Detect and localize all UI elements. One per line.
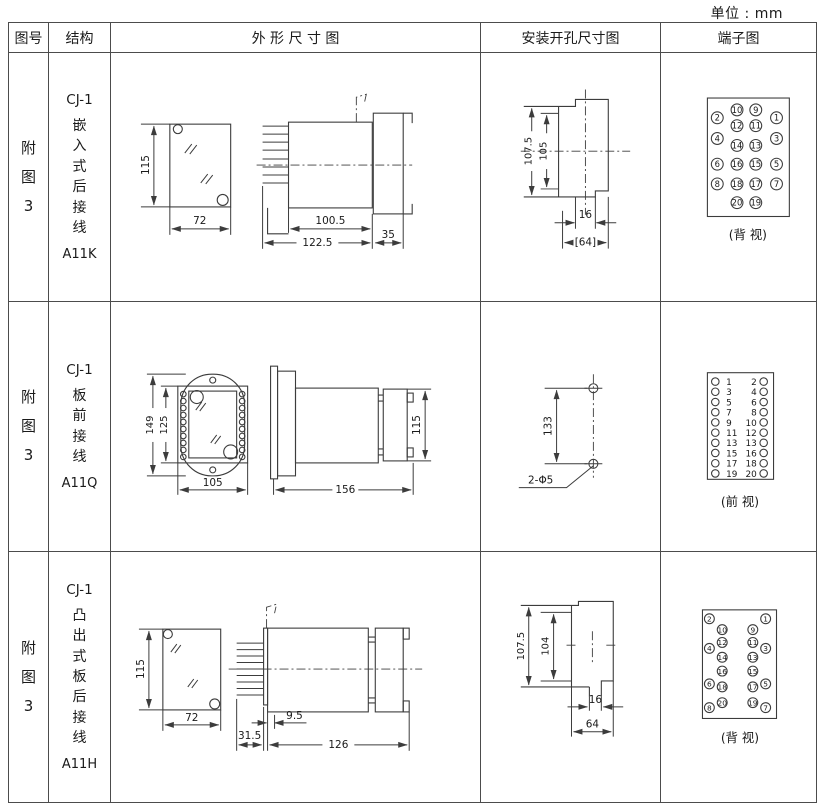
svg-text:10: 10 — [732, 104, 743, 114]
dim-label: 149 — [145, 415, 156, 434]
terminal-pin: 19 — [712, 469, 738, 479]
svg-text:2: 2 — [715, 112, 720, 122]
svg-text:20: 20 — [745, 469, 757, 479]
outline-cell-a11q: 149 125 105 115 — [111, 302, 481, 552]
svg-text:8: 8 — [707, 703, 712, 712]
svg-text:4: 4 — [715, 133, 720, 143]
terminal-pin: 4 — [704, 643, 714, 653]
svg-text:11: 11 — [726, 429, 737, 439]
terminal-pin: 6 — [704, 679, 714, 689]
terminal-pin: 4 — [711, 132, 723, 144]
terminal-pin: 10 — [745, 418, 767, 428]
terminal-pin: 2 — [704, 614, 714, 624]
svg-text:4: 4 — [751, 388, 757, 398]
svg-text:17: 17 — [726, 459, 737, 469]
structure-char: 板 — [73, 670, 87, 684]
svg-text:1: 1 — [763, 615, 768, 624]
terminal-pin: 9 — [712, 418, 733, 428]
svg-text:13: 13 — [750, 140, 761, 150]
svg-text:8: 8 — [751, 408, 757, 418]
terminal-pin: 1 — [771, 111, 783, 123]
dim-label: 104 — [541, 637, 552, 656]
structure-char: 式 — [73, 160, 87, 174]
view-caption: (前 视) — [721, 493, 759, 508]
terminal-pin: 17 — [750, 177, 762, 189]
structure-cell-a11h: CJ-1 凸 出 式 板 后 接 线 A11H — [49, 552, 111, 802]
model-label: CJ-1 — [66, 582, 92, 598]
terminal-pin: 17 — [748, 682, 758, 692]
terminal-strip — [181, 391, 245, 459]
dim-label: 105 — [203, 476, 223, 488]
svg-text:10: 10 — [745, 418, 757, 428]
dim-label: 133 — [543, 416, 555, 436]
svg-text:7: 7 — [726, 408, 732, 418]
svg-text:4: 4 — [707, 644, 712, 653]
terminal-pin: 8 — [751, 408, 767, 418]
fig-char: 附 — [21, 641, 36, 656]
terminal-diagram-a11k: 10 9 2 1 12 11 4 3 14 13 16 15 6 5 18 17… — [661, 53, 816, 302]
terminal-pin: 9 — [748, 625, 758, 635]
svg-text:5: 5 — [763, 680, 768, 689]
fig-char: 图 — [21, 670, 36, 685]
terminal-pin: 11 — [748, 638, 758, 648]
terminal-pin: 1 — [712, 377, 732, 387]
header-structure: 结构 — [49, 23, 111, 53]
dim-label: [64] — [575, 236, 596, 248]
svg-text:15: 15 — [750, 159, 761, 169]
terminal-pin: 13 — [745, 439, 767, 449]
fig-cell-a11k: 附 图 3 — [9, 53, 49, 302]
svg-text:14: 14 — [718, 653, 728, 662]
terminal-diagram-a11q: 1 2 3 4 5 6 7 8 9 10 11 12 13 13 15 16 1… — [661, 302, 816, 552]
outline-cell-a11h: 115 72 31.5 9.5 — [111, 552, 481, 802]
outline-drawing-a11h: 115 72 31.5 9.5 — [111, 552, 480, 802]
dim-label: 122.5 — [302, 236, 332, 248]
fig-char: 3 — [24, 448, 34, 463]
svg-text:9: 9 — [750, 625, 755, 634]
svg-text:5: 5 — [774, 159, 779, 169]
structure-char: 后 — [73, 690, 87, 704]
model-label: CJ-1 — [66, 362, 92, 378]
terminal-pin: 12 — [745, 428, 767, 438]
terminal-pin: 3 — [771, 132, 783, 144]
terminal-pin: 1 — [761, 614, 771, 624]
svg-text:14: 14 — [732, 140, 743, 150]
structure-char: 凸 — [73, 609, 87, 623]
install-cell-a11k: 107.5 105 16 [64] — [481, 53, 661, 302]
svg-text:15: 15 — [726, 449, 737, 459]
terminal-pin: 17 — [712, 459, 738, 469]
svg-text:2: 2 — [751, 378, 757, 388]
install-drawing-a11h: 107.5 104 16 64 — [481, 552, 660, 802]
svg-text:8: 8 — [715, 178, 720, 188]
svg-text:19: 19 — [726, 469, 738, 479]
terminal-pin: 11 — [750, 119, 762, 131]
svg-text:18: 18 — [718, 683, 728, 692]
structure-char: 后 — [73, 180, 87, 194]
fig-char: 图 — [21, 170, 36, 185]
terminal-pin: 16 — [731, 158, 743, 170]
svg-text:20: 20 — [732, 197, 743, 207]
structure-char: 嵌 — [73, 119, 87, 133]
fig-char: 附 — [21, 390, 36, 405]
fig-char: 附 — [21, 141, 36, 156]
terminal-pin: 15 — [748, 666, 758, 676]
terminal-pin: 15 — [750, 158, 762, 170]
fig-char: 3 — [24, 699, 34, 714]
dim-label: 156 — [335, 483, 355, 495]
fig-cell-a11h: 附 图 3 — [9, 552, 49, 802]
terminal-pin: 20 — [717, 698, 727, 708]
terminal-pin: 5 — [771, 158, 783, 170]
dim-label: 16 — [579, 208, 592, 220]
header-terminal: 端子图 — [661, 23, 816, 53]
structure-char: 线 — [73, 731, 87, 745]
svg-text:13: 13 — [748, 653, 758, 662]
dim-label: 72 — [185, 712, 198, 724]
svg-text:2: 2 — [707, 615, 712, 624]
terminal-pin: 18 — [745, 459, 767, 469]
terminal-pin: 19 — [750, 196, 762, 208]
terminal-pin: 4 — [751, 388, 767, 398]
terminal-pin: 16 — [745, 449, 767, 459]
svg-text:17: 17 — [750, 178, 761, 188]
dim-label: 31.5 — [238, 730, 261, 742]
svg-text:10: 10 — [718, 625, 728, 634]
terminal-pin: 20 — [731, 196, 743, 208]
dim-label: 16 — [589, 694, 602, 706]
dim-label: 115 — [135, 659, 147, 679]
install-cell-a11q: 133 2-Φ5 — [481, 302, 661, 552]
structure-char: 线 — [73, 221, 87, 235]
structure-cell-a11q: CJ-1 板 前 接 线 A11Q — [49, 302, 111, 552]
structure-char: 线 — [72, 450, 86, 464]
terminal-pin: 5 — [761, 679, 771, 689]
svg-text:7: 7 — [763, 703, 768, 712]
outline-drawing-a11q: 149 125 105 115 — [111, 302, 480, 552]
structure-cell-a11k: CJ-1 嵌 入 式 后 接 线 A11K — [49, 53, 111, 302]
terminal-pin: 6 — [711, 158, 723, 170]
terminal-pin: 12 — [717, 638, 727, 648]
model-code: A11H — [62, 757, 97, 772]
svg-text:7: 7 — [774, 178, 779, 188]
terminal-diagram-a11h: 2 1 10 9 12 11 4 3 14 13 16 15 6 5 18 17… — [661, 552, 816, 802]
terminal-pin: 7 — [771, 177, 783, 189]
terminal-pin: 7 — [761, 703, 771, 713]
terminal-pin: 11 — [712, 428, 738, 438]
terminal-pin: 5 — [712, 398, 732, 408]
terminal-pin: 2 — [751, 377, 767, 387]
svg-text:1: 1 — [726, 378, 732, 388]
dim-label: 35 — [382, 228, 395, 240]
svg-text:6: 6 — [751, 398, 757, 408]
terminal-pin: 3 — [761, 643, 771, 653]
svg-text:17: 17 — [748, 683, 758, 692]
svg-text:6: 6 — [707, 680, 712, 689]
terminal-pin: 8 — [711, 177, 723, 189]
terminal-pin: 13 — [748, 652, 758, 662]
dim-label: 115 — [411, 415, 423, 435]
install-drawing-a11q: 133 2-Φ5 — [481, 302, 660, 552]
terminal-cell-a11h: 2 1 10 9 12 11 4 3 14 13 16 15 6 5 18 17… — [661, 552, 816, 802]
hole-spec-label: 2-Φ5 — [528, 474, 553, 486]
outline-cell-a11k: 115 72 100.5 122.5 — [111, 53, 481, 302]
view-caption: (背 视) — [729, 227, 767, 242]
terminal-pin: 16 — [717, 666, 727, 676]
terminal-pin: 12 — [731, 119, 743, 131]
dim-label: 100.5 — [315, 214, 345, 226]
install-cell-a11h: 107.5 104 16 64 — [481, 552, 661, 802]
model-label: CJ-1 — [66, 92, 92, 108]
header-fig-no: 图号 — [9, 23, 49, 53]
drawing-table: 图号 结构 外 形 尺 寸 图 安装开孔尺寸图 端子图 附 图 3 CJ-1 嵌… — [8, 22, 817, 803]
terminal-pin: 18 — [731, 177, 743, 189]
svg-text:12: 12 — [718, 638, 727, 647]
install-drawing-a11k: 107.5 105 16 [64] — [481, 53, 660, 302]
structure-char: 出 — [73, 629, 87, 643]
svg-text:19: 19 — [750, 197, 761, 207]
terminal-pin: 13 — [712, 439, 738, 449]
header-outline: 外 形 尺 寸 图 — [111, 23, 481, 53]
model-code: A11Q — [62, 476, 98, 491]
structure-char: 接 — [72, 430, 86, 444]
svg-text:11: 11 — [750, 120, 761, 130]
terminal-pin: 14 — [731, 139, 743, 151]
svg-text:12: 12 — [732, 120, 743, 130]
dim-label: 107.5 — [516, 632, 527, 660]
svg-text:6: 6 — [715, 159, 720, 169]
structure-char: 式 — [73, 650, 87, 664]
svg-text:18: 18 — [732, 178, 743, 188]
svg-text:3: 3 — [774, 133, 779, 143]
svg-text:16: 16 — [732, 159, 743, 169]
fig-cell-a11q: 附 图 3 — [9, 302, 49, 552]
dim-label: 126 — [328, 739, 348, 751]
view-caption: (背 视) — [721, 730, 759, 745]
svg-text:12: 12 — [745, 429, 756, 439]
terminal-pin: 18 — [717, 682, 727, 692]
svg-text:13: 13 — [745, 439, 756, 449]
svg-text:18: 18 — [745, 459, 757, 469]
dim-label: 9.5 — [286, 710, 303, 722]
outline-drawing-a11k: 115 72 100.5 122.5 — [111, 53, 480, 302]
svg-text:13: 13 — [726, 439, 737, 449]
terminal-pin: 7 — [712, 408, 732, 418]
terminal-pin: 15 — [712, 449, 738, 459]
svg-text:15: 15 — [748, 667, 758, 676]
fig-char: 3 — [24, 199, 34, 214]
terminal-pin: 6 — [751, 398, 767, 408]
dim-label: 72 — [193, 214, 206, 226]
dim-label: 105 — [539, 141, 550, 160]
terminal-cell-a11q: 1 2 3 4 5 6 7 8 9 10 11 12 13 13 15 16 1… — [661, 302, 816, 552]
svg-text:19: 19 — [748, 698, 758, 707]
dim-label: 64 — [586, 719, 600, 731]
structure-char: 前 — [72, 409, 86, 423]
svg-text:9: 9 — [726, 418, 732, 428]
svg-text:11: 11 — [748, 638, 758, 647]
terminal-pin: 20 — [745, 469, 767, 479]
terminal-pin: 14 — [717, 652, 727, 662]
structure-char: 板 — [72, 389, 86, 403]
dim-label: 107.5 — [524, 136, 535, 164]
terminal-pin: 10 — [717, 625, 727, 635]
terminal-pin: 10 — [731, 103, 743, 115]
header-install: 安装开孔尺寸图 — [481, 23, 661, 53]
svg-text:3: 3 — [726, 388, 732, 398]
technical-drawing-page: 单位 : mm 图号 结构 外 形 尺 寸 图 安装开孔尺寸图 端子图 附 图 … — [0, 0, 825, 811]
svg-text:20: 20 — [718, 698, 728, 707]
terminal-pin: 9 — [750, 103, 762, 115]
unit-label: 单位 : mm — [711, 3, 783, 23]
svg-text:5: 5 — [726, 398, 732, 408]
terminal-pin: 13 — [750, 139, 762, 151]
terminal-pin: 19 — [748, 698, 758, 708]
svg-text:1: 1 — [774, 112, 779, 122]
terminal-cell-a11k: 10 9 2 1 12 11 4 3 14 13 16 15 6 5 18 17… — [661, 53, 816, 302]
terminal-pin: 2 — [711, 111, 723, 123]
terminal-pin: 8 — [704, 703, 714, 713]
fig-char: 图 — [21, 419, 36, 434]
dim-label: 115 — [140, 155, 152, 175]
model-code: A11K — [63, 247, 97, 262]
svg-text:3: 3 — [763, 644, 768, 653]
structure-char: 接 — [73, 201, 87, 215]
terminal-pin: 3 — [712, 388, 732, 398]
svg-text:16: 16 — [718, 667, 728, 676]
svg-text:9: 9 — [753, 104, 758, 114]
dim-label: 125 — [159, 415, 170, 434]
structure-char: 入 — [73, 139, 87, 153]
svg-text:16: 16 — [745, 449, 757, 459]
structure-char: 接 — [73, 711, 87, 725]
